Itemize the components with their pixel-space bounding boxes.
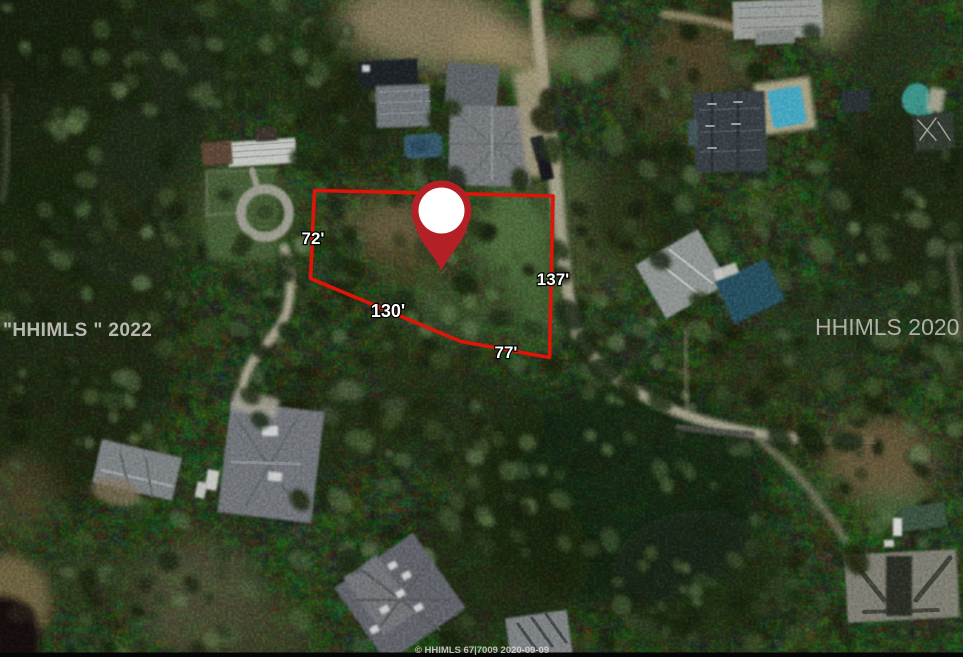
svg-text:137': 137' — [537, 270, 569, 289]
svg-text:72': 72' — [302, 229, 325, 248]
svg-text:77': 77' — [495, 343, 518, 362]
svg-text:"HHIMLS " 2022: "HHIMLS " 2022 — [3, 320, 152, 341]
svg-text:130': 130' — [371, 301, 405, 321]
svg-text:© HHIMLS 67|7009 2020-09-09: © HHIMLS 67|7009 2020-09-09 — [415, 645, 549, 656]
svg-text:HHIMLS 2020: HHIMLS 2020 — [815, 314, 959, 340]
